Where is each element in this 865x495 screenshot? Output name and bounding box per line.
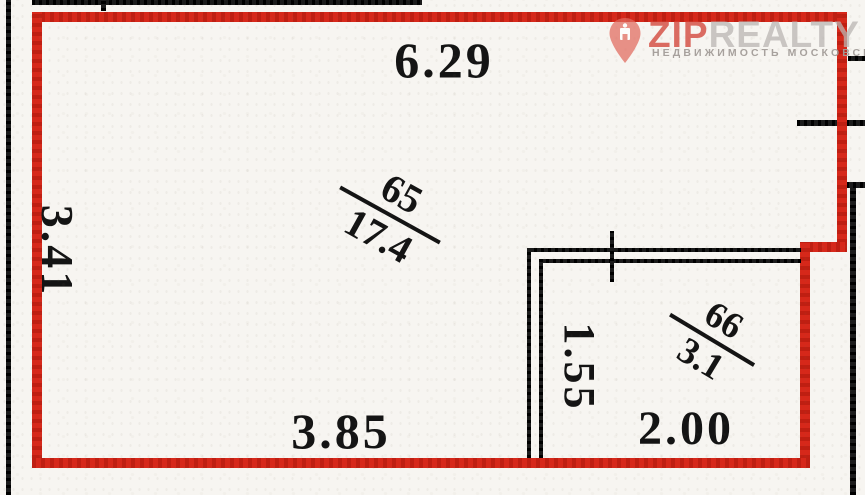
room-66-wall-top-outer	[527, 248, 801, 252]
location-pin-icon	[608, 17, 642, 65]
apartment-outline-bottom	[32, 458, 810, 468]
apartment-outline-right-lower	[800, 242, 810, 468]
room-66-wall-top-inner	[539, 259, 801, 263]
neighbor-wall-tick-middle	[797, 120, 865, 126]
dimension-left: 3.41	[34, 205, 80, 298]
building-wall-left	[6, 0, 11, 495]
room-65-label: 65 17.4	[319, 150, 460, 280]
room-66-wall-tick	[610, 231, 614, 282]
building-wall-top-stub	[101, 0, 106, 11]
dimension-bottom-left: 3.85	[291, 406, 391, 456]
room-66-wall-left-outer	[527, 248, 531, 458]
dimension-bottom-right: 2.00	[638, 405, 734, 453]
ziprealty-watermark: ZIPREALTY НЕДВИЖИМОСТЬ МОСКОВСКОГО РЕГИО…	[608, 14, 864, 64]
neighbor-wall-tick-lower	[846, 182, 865, 188]
brand-tagline: НЕДВИЖИМОСТЬ МОСКОВСКОГО РЕГИОНА	[652, 47, 865, 59]
floor-plan-scan: 6.29 3.41 1.55 3.85 2.00 65 17.4 66 3.1 …	[0, 0, 865, 495]
building-wall-top	[32, 0, 422, 5]
room-66-label: 66 3.1	[649, 280, 774, 399]
building-wall-right	[850, 183, 856, 495]
dimension-top: 6.29	[394, 35, 494, 85]
room-66-wall-left-inner	[539, 259, 543, 458]
dimension-room66-left: 1.55	[557, 323, 601, 412]
